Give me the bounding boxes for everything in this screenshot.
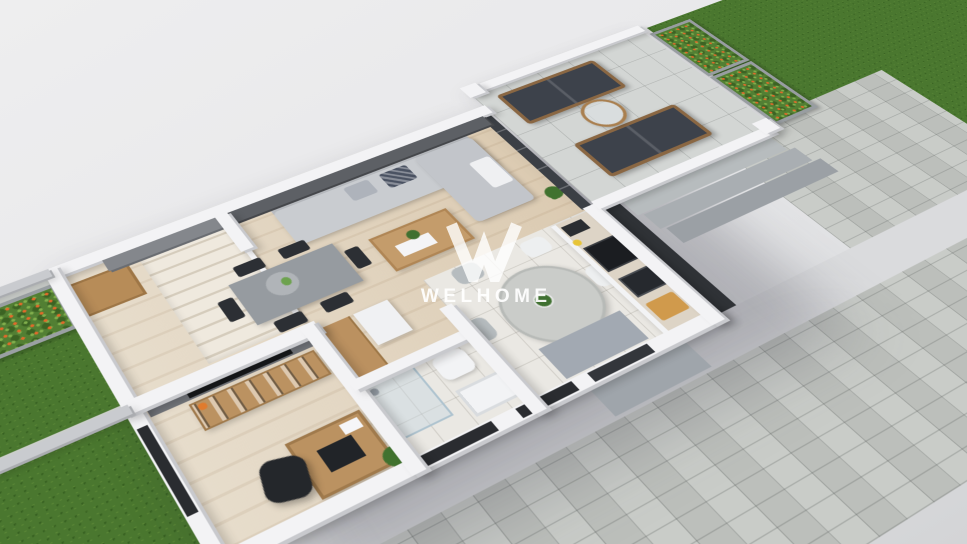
isometric-scene (0, 0, 967, 544)
floor-plan-render: WELHOME (0, 0, 967, 544)
floor-plan (0, 0, 967, 544)
